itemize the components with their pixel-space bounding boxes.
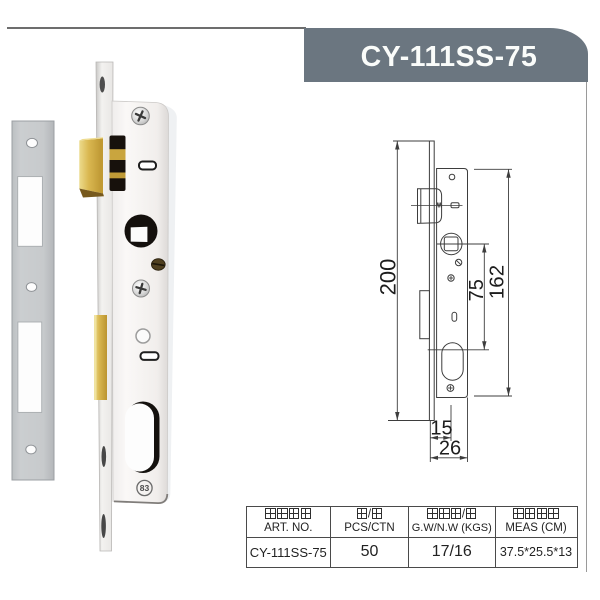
svg-text:200: 200 [375, 259, 400, 296]
svg-text:75: 75 [466, 279, 488, 301]
svg-text:15: 15 [430, 418, 452, 440]
svg-text:162: 162 [486, 265, 509, 299]
svg-text:26: 26 [439, 438, 461, 460]
svg-text:83: 83 [140, 483, 150, 493]
